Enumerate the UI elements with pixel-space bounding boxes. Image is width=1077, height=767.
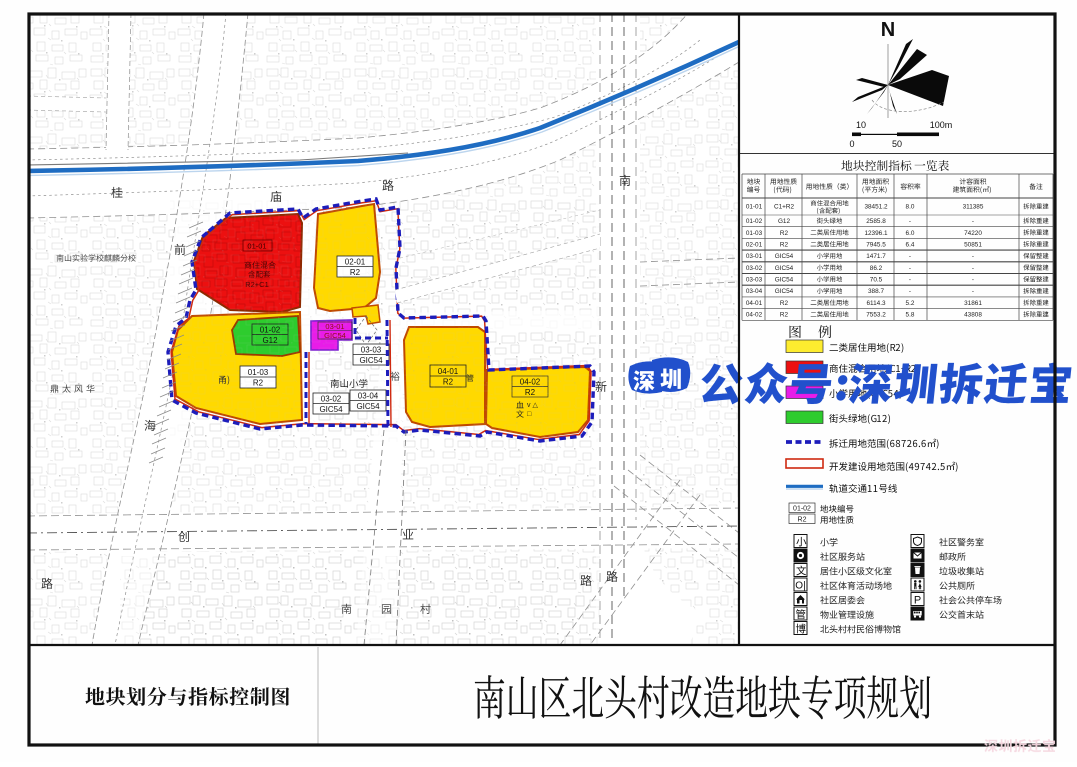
svg-text:5.8: 5.8 (906, 312, 915, 319)
svg-text:01-01: 01-01 (746, 204, 763, 211)
svg-text:P: P (914, 595, 921, 607)
svg-text:-: - (909, 288, 911, 295)
svg-text:6114.3: 6114.3 (866, 300, 886, 307)
svg-text:-: - (972, 277, 974, 284)
svg-text:0: 0 (849, 139, 854, 149)
svg-text:1471.7: 1471.7 (866, 253, 886, 260)
svg-text:O|: O| (795, 581, 805, 592)
svg-text:-: - (909, 218, 911, 225)
svg-text:03-03: 03-03 (746, 277, 763, 284)
svg-text:38451.2: 38451.2 (864, 204, 888, 211)
svg-text:5.2: 5.2 (906, 300, 915, 307)
svg-text:R2: R2 (780, 312, 789, 319)
svg-text:04-02: 04-02 (746, 312, 763, 319)
svg-text:43808: 43808 (964, 312, 982, 319)
svg-text:-: - (972, 218, 974, 225)
svg-text:388.7: 388.7 (868, 288, 884, 295)
svg-text:C1+R2: C1+R2 (774, 204, 795, 211)
svg-text:74220: 74220 (964, 230, 982, 237)
svg-text:N: N (881, 19, 895, 41)
svg-text:6.0: 6.0 (906, 230, 915, 237)
svg-text:R2: R2 (780, 230, 789, 237)
svg-text:GIC54: GIC54 (775, 288, 794, 295)
svg-text:2585.8: 2585.8 (866, 218, 886, 225)
svg-text:04-01: 04-01 (746, 300, 763, 307)
svg-text:10: 10 (856, 120, 866, 130)
svg-text:70.5: 70.5 (870, 277, 883, 284)
svg-text:R2: R2 (780, 241, 789, 248)
svg-text:G12: G12 (778, 218, 791, 225)
svg-text:-: - (972, 265, 974, 272)
svg-text:7945.5: 7945.5 (866, 241, 886, 248)
svg-text:-: - (909, 253, 911, 260)
svg-text:50: 50 (892, 139, 902, 149)
svg-text:311385: 311385 (963, 204, 984, 211)
svg-text:-: - (972, 288, 974, 295)
svg-text:86.2: 86.2 (870, 265, 883, 272)
svg-text:-: - (909, 265, 911, 272)
svg-text:R2: R2 (780, 300, 789, 307)
svg-text:02-01: 02-01 (746, 241, 763, 248)
svg-text:6.4: 6.4 (906, 241, 915, 248)
svg-text:7553.2: 7553.2 (866, 312, 886, 319)
svg-text:01-02: 01-02 (746, 218, 763, 225)
svg-text:GIC54: GIC54 (775, 265, 794, 272)
svg-text:8.0: 8.0 (906, 204, 915, 211)
svg-text:50851: 50851 (964, 241, 982, 248)
svg-text:100m: 100m (930, 120, 953, 130)
svg-text:-: - (972, 253, 974, 260)
svg-text:GIC54: GIC54 (775, 277, 794, 284)
svg-text:01-03: 01-03 (746, 230, 763, 237)
svg-text:-: - (909, 277, 911, 284)
svg-text:03-01: 03-01 (746, 253, 763, 260)
svg-text:03-02: 03-02 (746, 265, 763, 272)
svg-text:GIC54: GIC54 (775, 253, 794, 260)
svg-text:12396.1: 12396.1 (864, 230, 888, 237)
svg-text:31861: 31861 (964, 300, 982, 307)
svg-text:03-04: 03-04 (746, 288, 763, 295)
svg-text:01-02: 01-02 (793, 506, 811, 513)
svg-text:R2: R2 (798, 517, 807, 524)
